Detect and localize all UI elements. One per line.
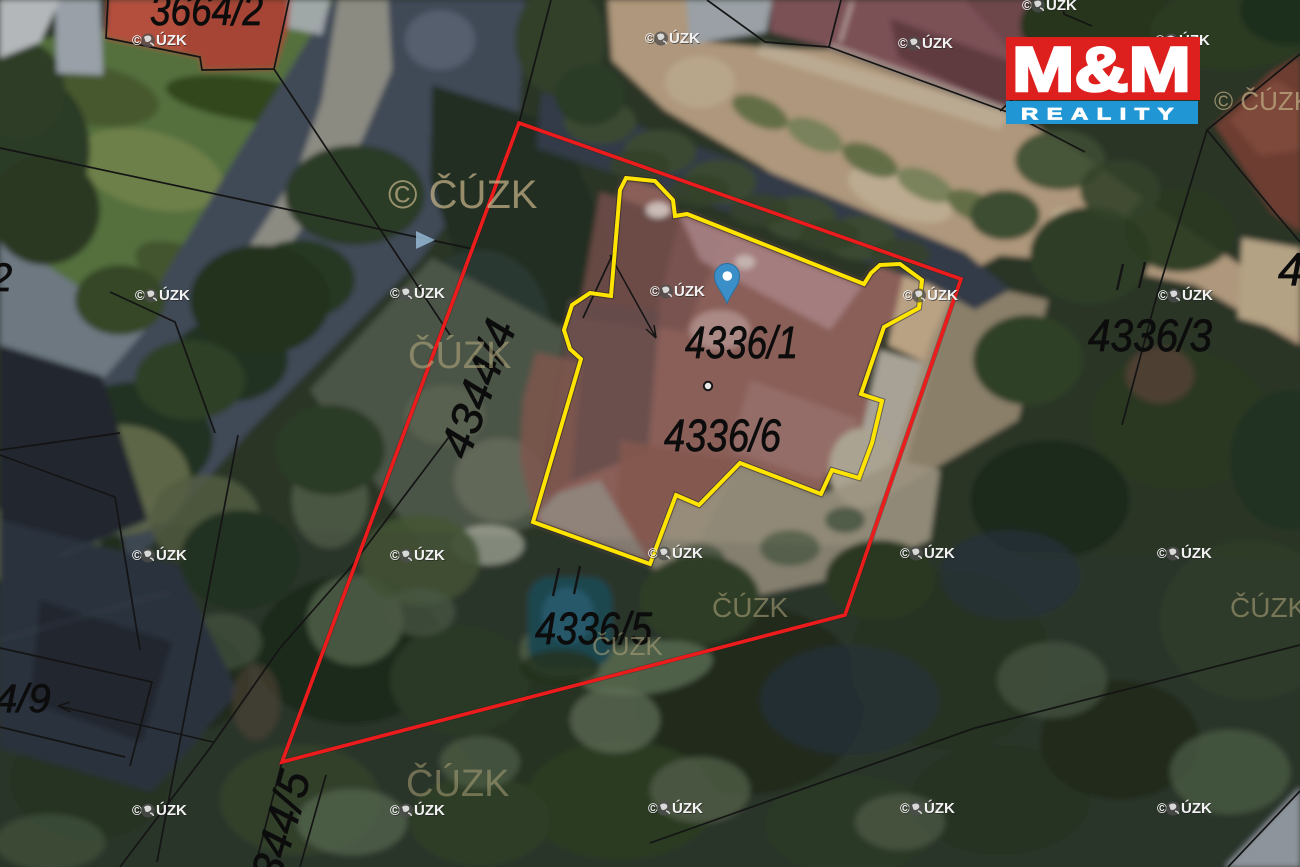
svg-text:3664/2: 3664/2 bbox=[150, 0, 263, 35]
svg-text:ČÚZK: ČÚZK bbox=[712, 592, 789, 623]
svg-text:ČÚZK: ČÚZK bbox=[1230, 592, 1300, 623]
svg-text:4: 4 bbox=[1278, 243, 1300, 295]
svg-text:ÚZK: ÚZK bbox=[156, 31, 187, 49]
svg-text:ÚZK: ÚZK bbox=[414, 546, 445, 564]
svg-text:©: © bbox=[903, 288, 913, 303]
svg-text:© ČÚZK: © ČÚZK bbox=[388, 172, 538, 217]
svg-text:M&M: M&M bbox=[1012, 35, 1191, 105]
svg-text:ÚZK: ÚZK bbox=[927, 286, 958, 304]
svg-text:ÚZK: ÚZK bbox=[156, 801, 187, 819]
svg-text:ÚZK: ÚZK bbox=[922, 34, 953, 52]
svg-text:©: © bbox=[900, 801, 910, 816]
svg-text:ÚZK: ÚZK bbox=[924, 544, 955, 562]
svg-text:REALITY: REALITY bbox=[1021, 105, 1182, 124]
svg-text:ÚZK: ÚZK bbox=[1181, 799, 1212, 817]
svg-text:ÚZK: ÚZK bbox=[1046, 0, 1077, 14]
svg-text:ÚZK: ÚZK bbox=[672, 799, 703, 817]
svg-text:©: © bbox=[1157, 546, 1167, 561]
svg-text:ÚZK: ÚZK bbox=[924, 799, 955, 817]
svg-text:©: © bbox=[1158, 288, 1168, 303]
svg-text:©: © bbox=[648, 546, 658, 561]
svg-text:©: © bbox=[390, 286, 400, 301]
svg-text:©: © bbox=[1022, 0, 1032, 13]
svg-text:2: 2 bbox=[0, 256, 12, 300]
svg-text:ÚZK: ÚZK bbox=[672, 544, 703, 562]
svg-text:ÚZK: ÚZK bbox=[414, 284, 445, 302]
svg-text:4336/3: 4336/3 bbox=[1088, 310, 1212, 361]
svg-text:ČÚZK: ČÚZK bbox=[408, 333, 511, 377]
svg-text:©: © bbox=[1157, 801, 1167, 816]
svg-text:4336/6: 4336/6 bbox=[664, 410, 782, 461]
svg-text:4/9: 4/9 bbox=[0, 677, 51, 721]
svg-text:ÚZK: ÚZK bbox=[669, 29, 700, 47]
svg-text:©: © bbox=[132, 548, 142, 563]
svg-text:ČÚZK: ČÚZK bbox=[406, 761, 509, 805]
svg-text:ČÚZK: ČÚZK bbox=[592, 631, 663, 661]
svg-text:©: © bbox=[390, 803, 400, 818]
svg-text:©: © bbox=[135, 288, 145, 303]
svg-text:©: © bbox=[898, 36, 908, 51]
svg-text:©: © bbox=[132, 33, 142, 48]
svg-text:©: © bbox=[900, 546, 910, 561]
svg-text:ÚZK: ÚZK bbox=[159, 286, 190, 304]
svg-text:ÚZK: ÚZK bbox=[1182, 286, 1213, 304]
svg-text:ÚZK: ÚZK bbox=[1181, 544, 1212, 562]
svg-text:ÚZK: ÚZK bbox=[674, 282, 705, 300]
svg-text:© ČÚZK: © ČÚZK bbox=[1214, 86, 1300, 116]
svg-text:©: © bbox=[648, 801, 658, 816]
svg-text:4336/1: 4336/1 bbox=[685, 317, 798, 368]
svg-text:©: © bbox=[650, 284, 660, 299]
svg-text:©: © bbox=[132, 803, 142, 818]
svg-text:©: © bbox=[390, 548, 400, 563]
svg-text:ÚZK: ÚZK bbox=[156, 546, 187, 564]
svg-text:©: © bbox=[645, 31, 655, 46]
